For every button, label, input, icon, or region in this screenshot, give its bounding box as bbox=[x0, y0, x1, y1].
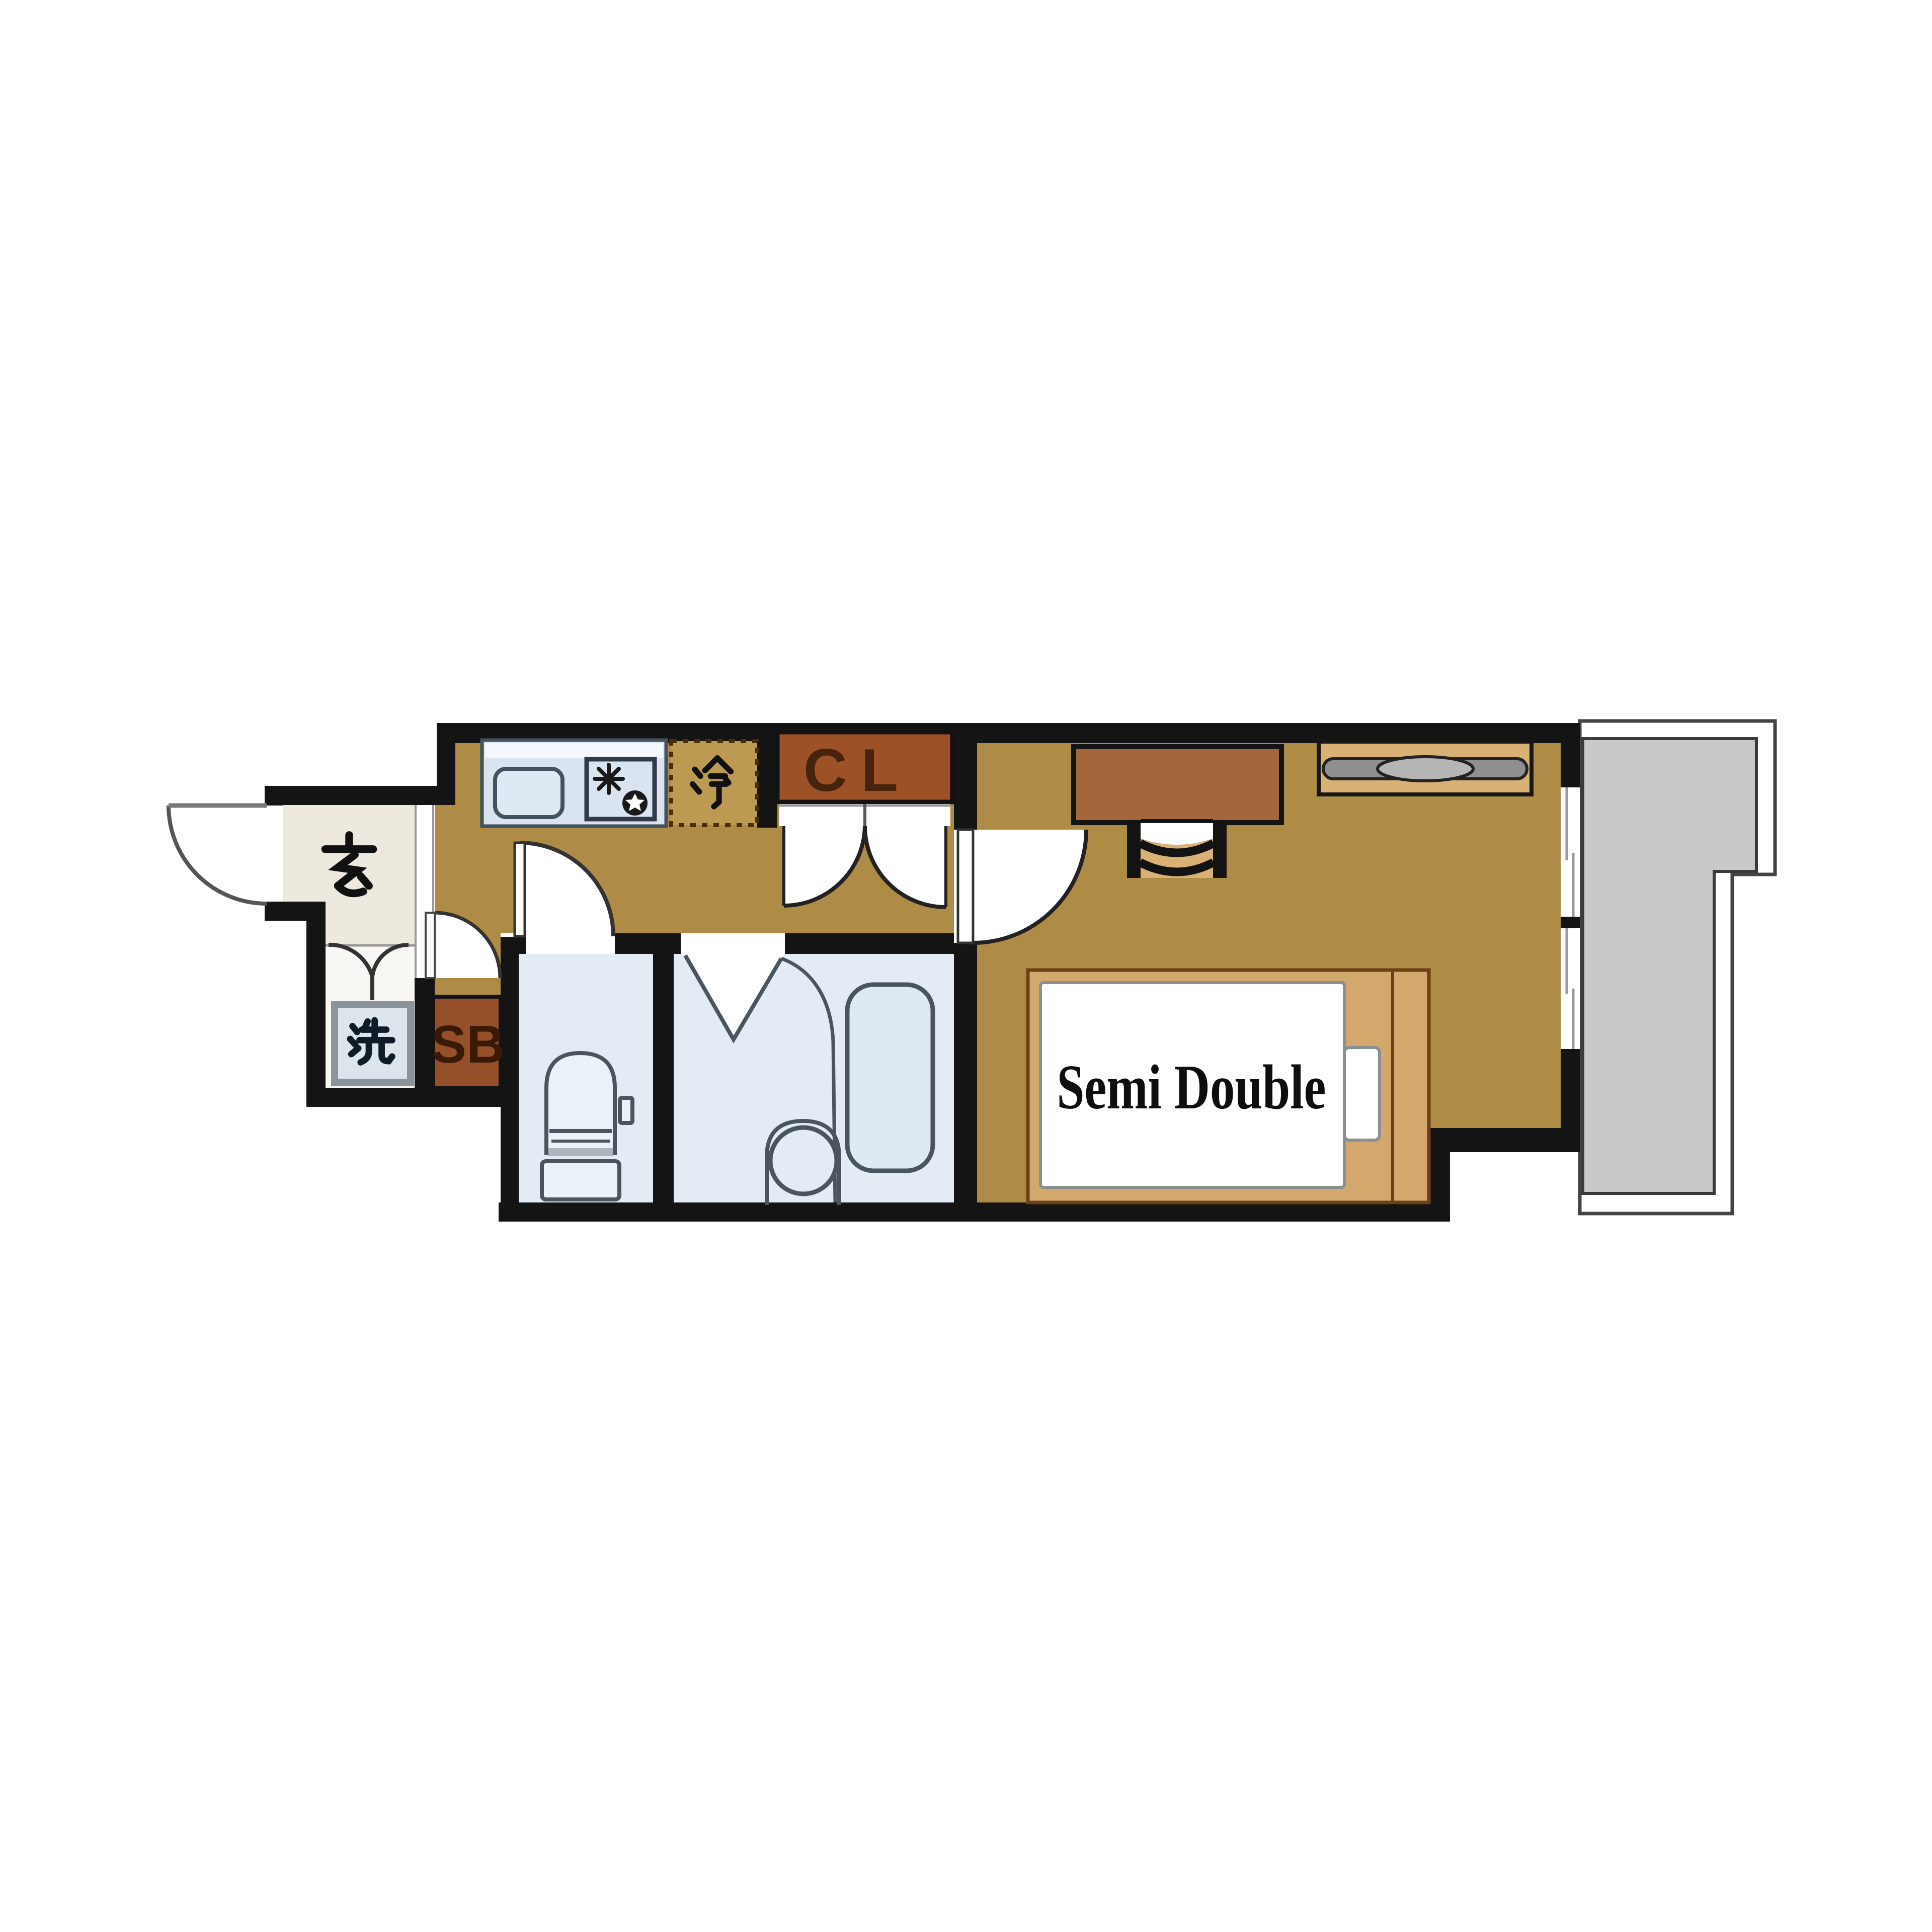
svg-text:SB: SB bbox=[431, 1015, 505, 1074]
svg-text:CL: CL bbox=[803, 737, 912, 804]
svg-text:Semi Double: Semi Double bbox=[1057, 1053, 1326, 1122]
